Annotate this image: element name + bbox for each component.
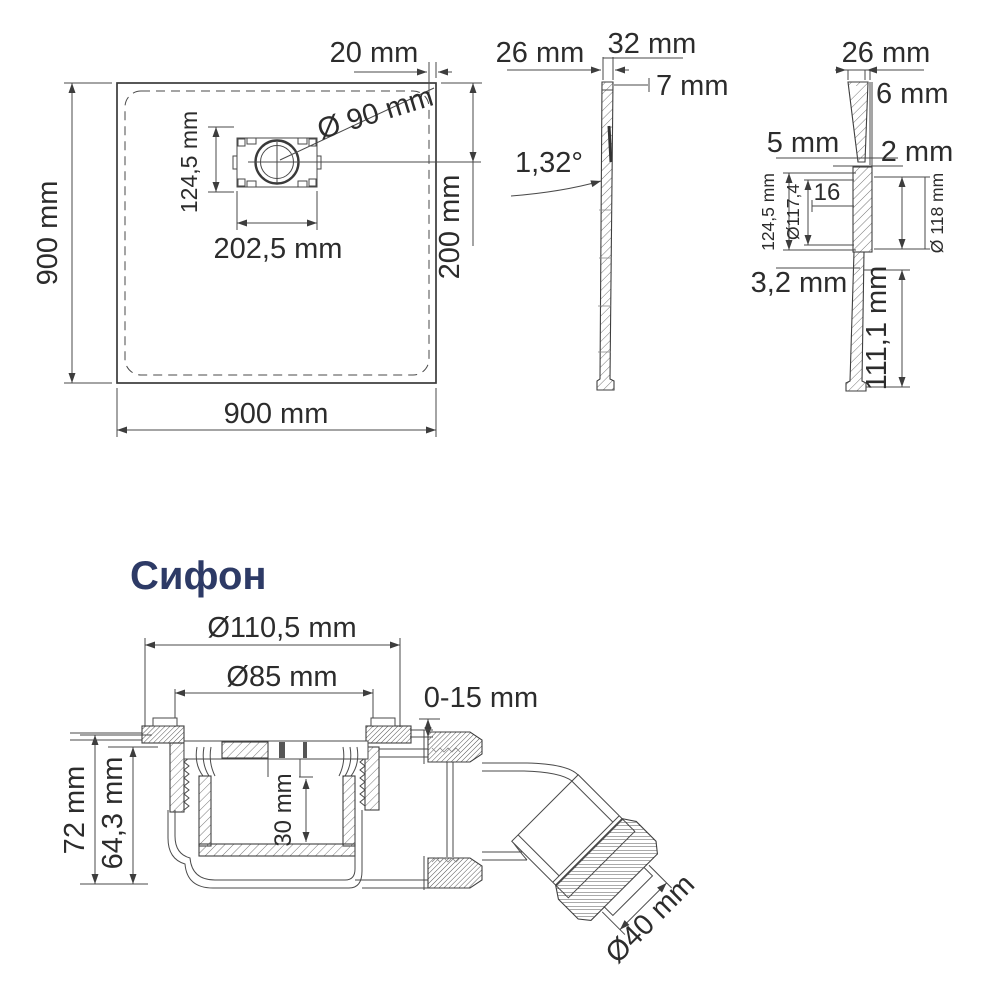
dim-label-sheet-thickness: 3,2 mm	[751, 267, 848, 299]
dim-outer-diameter: Ø 118 mm	[874, 173, 947, 253]
dim-section-cutout: 124,5 mm	[758, 173, 856, 251]
dim-label-cutout-height: 124,5 mm	[176, 111, 202, 213]
dim-label-inner-diameter: Ø117,4	[783, 184, 803, 240]
siphon-body	[70, 718, 578, 890]
dim-label-water-seal: 30 mm	[270, 773, 297, 846]
tray-section-body	[597, 82, 614, 390]
dim-label-outer-diameter: Ø 118 mm	[927, 173, 947, 253]
dim-height-adjustment: 0-15 mm	[419, 682, 538, 737]
dim-label-center-offset: 200 mm	[434, 175, 466, 280]
dim-label-slope-angle: 1,32°	[515, 147, 583, 179]
grate-slot	[279, 742, 285, 758]
dim-wall-right: 2 mm	[833, 136, 953, 168]
dim-label-drain-diameter: Ø 90 mm	[314, 81, 437, 146]
dim-label-profile-lip: 7 mm	[656, 70, 729, 102]
dim-label-flange-diameter: Ø110,5 mm	[207, 612, 356, 644]
left-clamp-cap	[153, 718, 177, 726]
dim-label-edge-offset: 20 mm	[330, 37, 419, 69]
dim-label-wall-left: 5 mm	[767, 127, 840, 159]
cup-right-wall	[343, 776, 355, 846]
dim-profile-lip: 7 mm	[614, 70, 729, 102]
dim-label-grate-diameter: Ø85 mm	[226, 661, 337, 693]
dim-label-cutout-width: 202,5 mm	[214, 233, 343, 265]
dim-label-tray-width: 900 mm	[224, 398, 329, 430]
dim-tray-width: 900 mm	[117, 388, 436, 437]
dim-profile-top: 32 mm	[603, 28, 696, 60]
dim-grate-diameter: Ø85 mm	[175, 661, 373, 727]
dim-label-total-height: 72 mm	[59, 766, 91, 855]
dim-label-section-cutout: 124,5 mm	[758, 173, 778, 251]
dim-sheet-thickness: 3,2 mm	[751, 267, 860, 299]
technical-drawing-page: 900 mm 900 mm 20 mm Ø 90 mm 124,5 mm	[0, 0, 1000, 1000]
dim-label-tray-height: 900 mm	[32, 181, 64, 286]
right-clamp-cap	[371, 718, 395, 726]
dim-cutout-width: 202,5 mm	[214, 191, 343, 265]
cup-left-wall	[199, 776, 211, 846]
dim-label-profile-edge: 26 mm	[496, 37, 585, 69]
union-nut-top	[428, 732, 482, 762]
siphon-title: Сифон	[130, 554, 267, 598]
dim-label-height-adjustment: 0-15 mm	[424, 682, 538, 714]
dim-water-seal: 30 mm	[270, 773, 313, 846]
dim-label-section-edge: 26 mm	[842, 37, 931, 69]
dim-section-edge: 26 mm	[835, 37, 930, 80]
dim-body-height: 64,3 mm	[97, 747, 158, 884]
dimension-drawing: 900 mm 900 mm 20 mm Ø 90 mm 124,5 mm	[0, 0, 1000, 1000]
tray-plan-view: 900 mm 900 mm 20 mm Ø 90 mm 124,5 mm	[32, 37, 482, 437]
grate-cover	[184, 741, 368, 759]
dim-label-wall-right: 2 mm	[881, 136, 954, 168]
union-nut-bottom	[428, 858, 482, 888]
dim-wall-left: 5 mm	[767, 127, 898, 159]
dim-inset: 16	[812, 179, 854, 212]
tray-profile-view: 26 mm 32 mm 7 mm 1,32°	[496, 28, 729, 390]
dim-drain-depth: 111,1 mm	[861, 266, 910, 391]
drain-seal-mark	[609, 126, 611, 162]
dim-tray-height: 900 mm	[32, 83, 112, 383]
dim-center-offset: 200 mm	[434, 83, 482, 279]
dim-label-section-lip: 6 mm	[876, 78, 949, 110]
dim-label-body-height: 64,3 mm	[97, 757, 129, 870]
dim-label-drain-depth: 111,1 mm	[861, 266, 893, 391]
left-threaded-wall	[170, 743, 184, 812]
dim-slope-angle: 1,32°	[511, 147, 601, 196]
siphon-view: Сифон Ø110,5 mm Ø85 mm 0-15 mm 72 mm	[59, 554, 703, 970]
right-clamp-flange	[366, 726, 411, 743]
grate-slot	[303, 742, 307, 758]
dim-cutout-height: 124,5 mm	[176, 111, 234, 213]
dim-label-profile-top: 32 mm	[608, 28, 697, 60]
left-clamp-flange	[142, 726, 184, 743]
drain-section-view: 26 mm 6 mm 5 mm 2 mm 16 124,5 mm Ø117,4	[751, 37, 954, 391]
drain-flange-section	[853, 167, 872, 252]
dim-label-inset: 16	[814, 179, 841, 206]
outlet-elbow: Ø40 mm	[503, 769, 704, 970]
